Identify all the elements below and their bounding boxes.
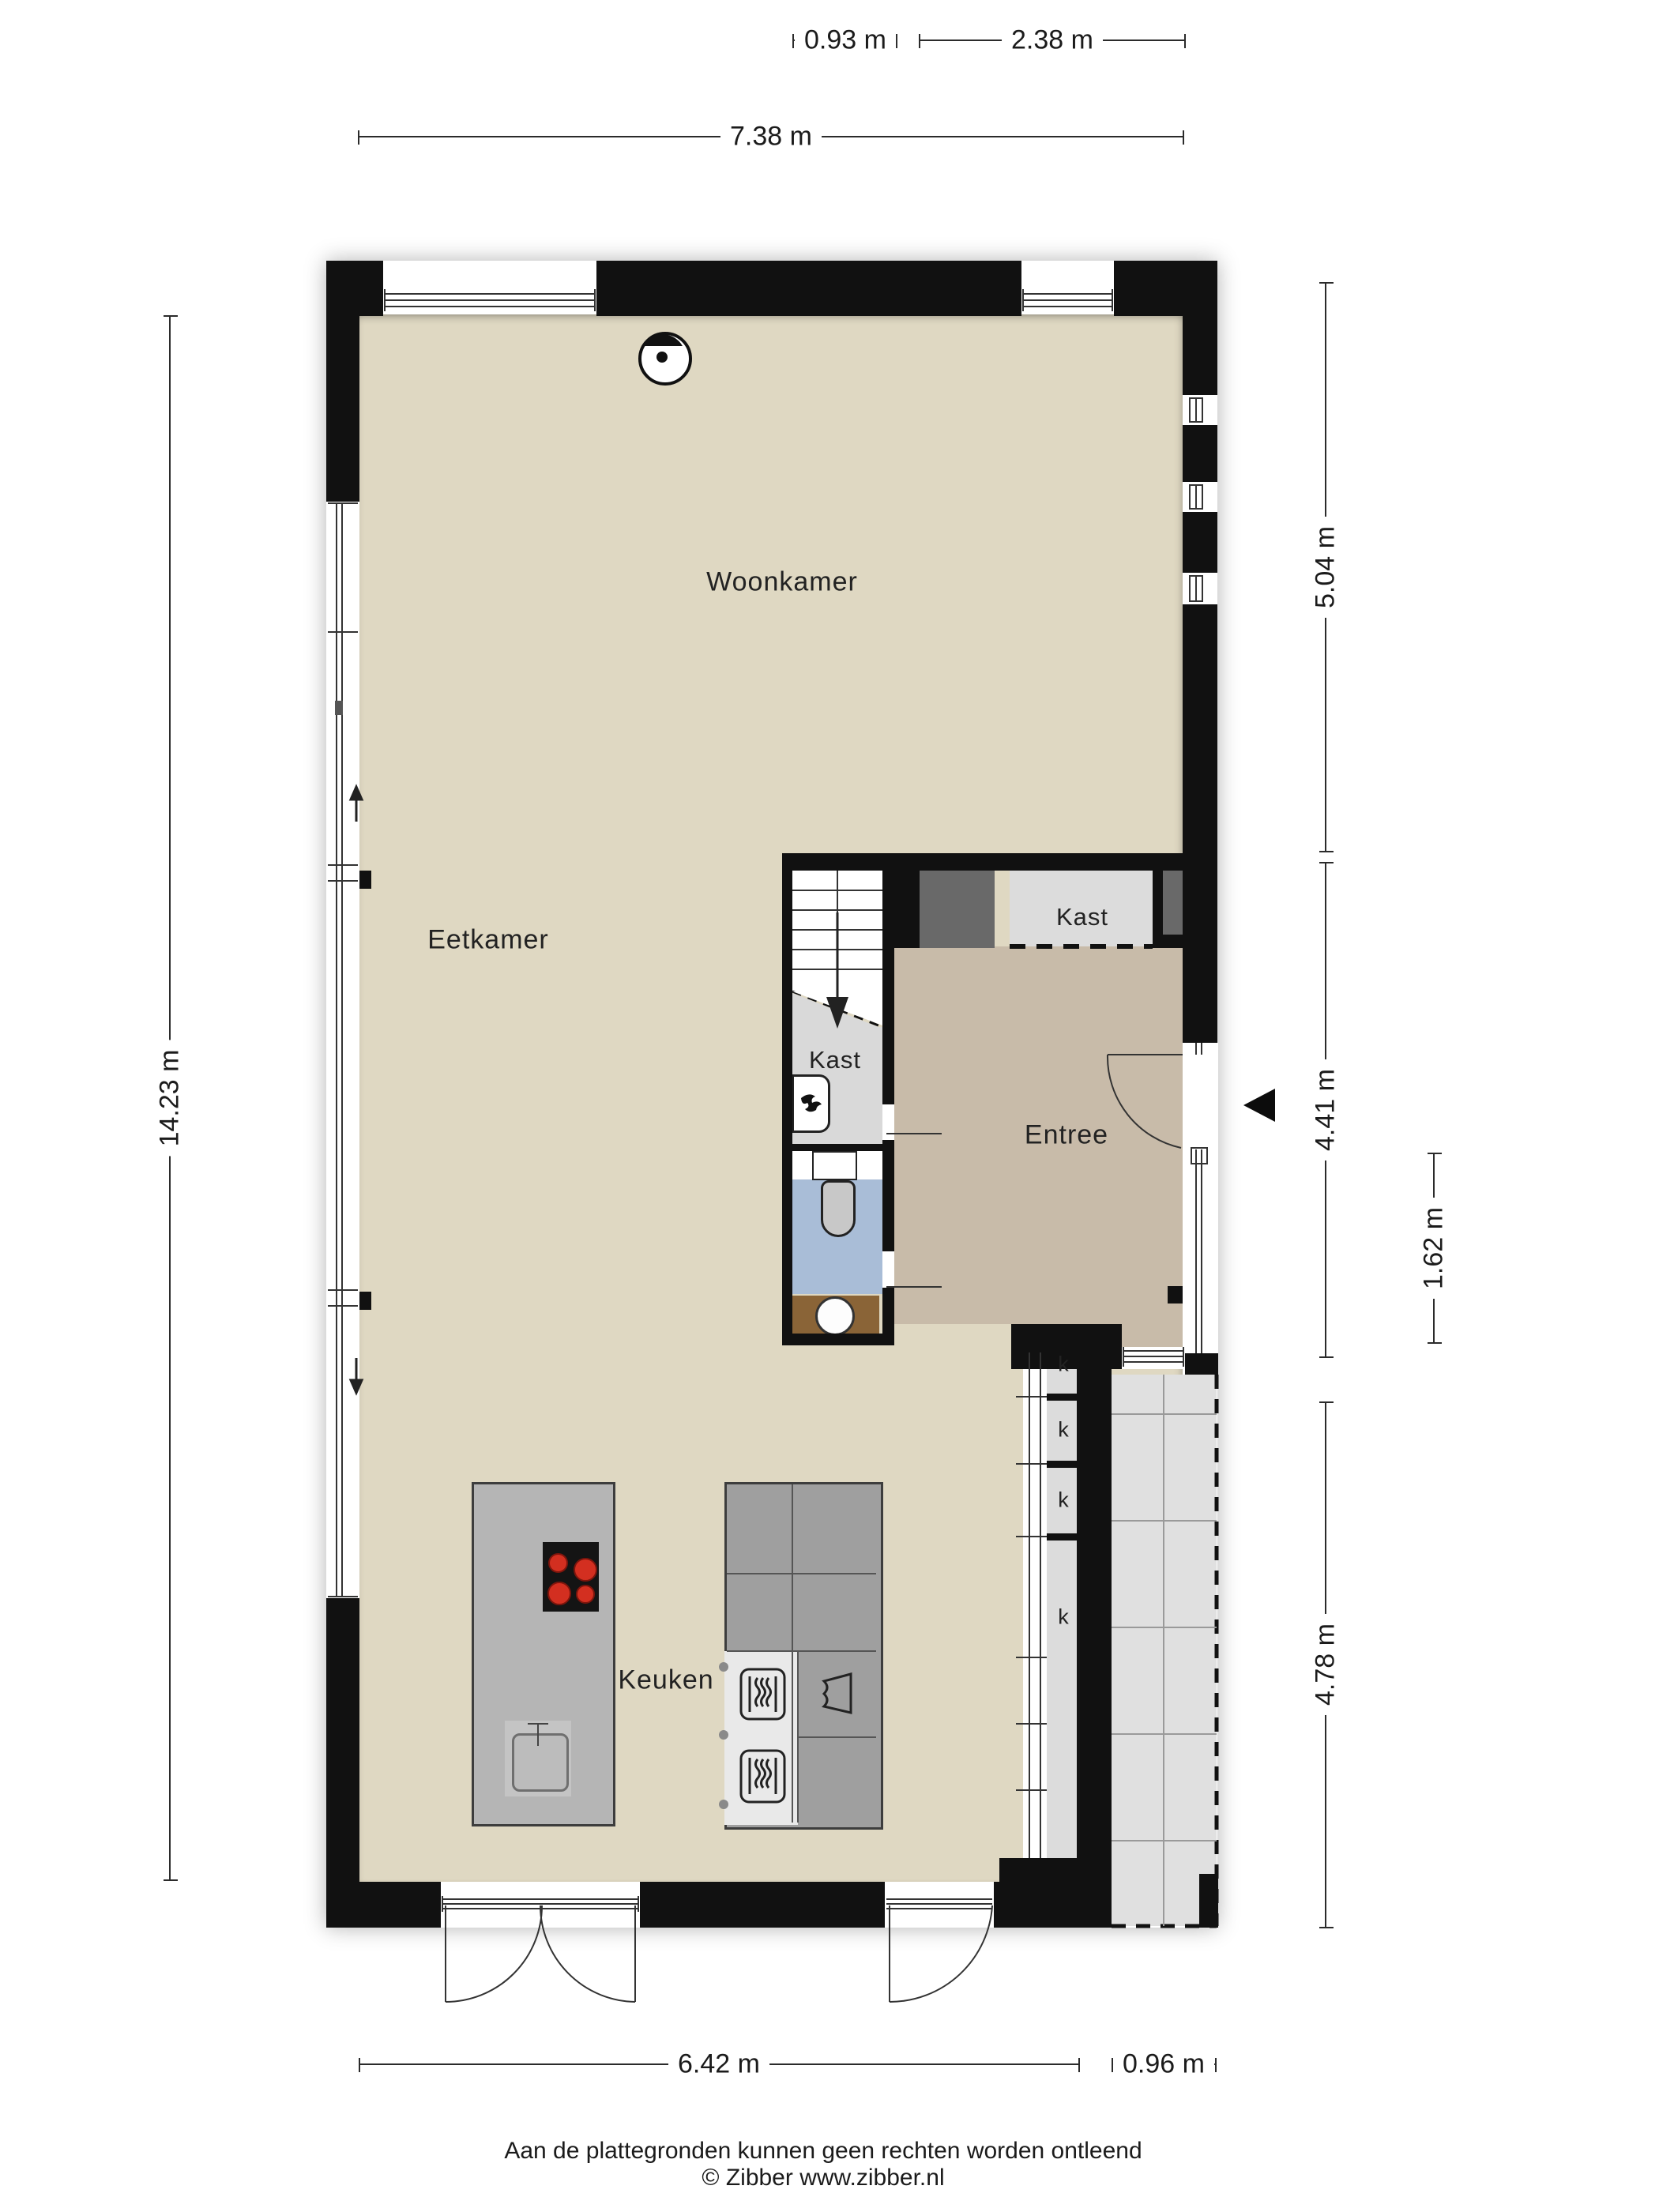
- room-label-kast-hall: Kast: [1056, 903, 1108, 931]
- french-door-left: [446, 1905, 542, 2002]
- glazing-pane-tick: [335, 701, 343, 715]
- ceiling-light-center: [656, 352, 668, 363]
- room-label-eetkamer: Eetkamer: [427, 925, 549, 956]
- k-closet-label: k: [1058, 1488, 1069, 1513]
- window-frame: [1023, 289, 1112, 311]
- sliding-door-arrow-icon: [351, 787, 362, 1393]
- window-frame: [1123, 1347, 1183, 1367]
- room-label-kast-under-stairs: Kast: [809, 1046, 861, 1074]
- dim-label-1423: 14.23 m: [153, 1040, 187, 1157]
- dim-label-162: 1.62 m: [1417, 1198, 1451, 1299]
- dim-label-478: 4.78 m: [1309, 1614, 1343, 1715]
- k-closet-label: k: [1058, 1418, 1069, 1443]
- boiler-flame-icon: [801, 1094, 822, 1112]
- door-sill: [886, 1899, 992, 1909]
- glazing-ticks: [1016, 1397, 1047, 1790]
- dim-label-504: 5.04 m: [1309, 517, 1343, 618]
- entrance-arrow-icon: [1243, 1089, 1275, 1122]
- dim-label-238: 2.38 m: [1002, 24, 1103, 58]
- k-closet-label: k: [1058, 1605, 1069, 1630]
- dim-label-096: 0.96 m: [1113, 2048, 1214, 2082]
- glazing-junction: [1191, 1148, 1207, 1164]
- room-label-woonkamer: Woonkamer: [706, 567, 858, 598]
- door-sill: [442, 1896, 638, 1912]
- k-closet-label: k: [1058, 1352, 1069, 1377]
- glazing-lines: [1196, 1043, 1202, 1353]
- french-door-right: [540, 1905, 635, 2002]
- dim-label-441: 4.41 m: [1309, 1059, 1343, 1161]
- dim-label-738: 7.38 m: [720, 120, 822, 154]
- copyright-text: © Zibber www.zibber.nl: [702, 2165, 944, 2191]
- faucet-icon: [528, 1724, 548, 1746]
- floorplan-page: Woonkamer Eetkamer Keuken Entree Kast Ka…: [0, 0, 1659, 2212]
- room-label-keuken: Keuken: [618, 1665, 713, 1696]
- room-label-entree: Entree: [1025, 1120, 1108, 1151]
- disclaimer-text: Aan de plattegronden kunnen geen rechten…: [504, 2138, 1142, 2165]
- dim-label-642: 6.42 m: [668, 2048, 769, 2082]
- terrace-grid: [1112, 1375, 1217, 1926]
- dim-label-093: 0.93 m: [795, 24, 896, 58]
- side-door: [890, 1905, 992, 2002]
- glazing-lines: [328, 503, 358, 1597]
- window-frame: [385, 289, 595, 311]
- glazing-lines: [1029, 1352, 1040, 1858]
- front-door-arc: [1108, 1055, 1181, 1148]
- plan-linework: [0, 0, 1659, 2212]
- cabinet-door-icon: [824, 1674, 851, 1713]
- oven-icon: [741, 1669, 784, 1802]
- ceiling-light-shade: [641, 334, 683, 346]
